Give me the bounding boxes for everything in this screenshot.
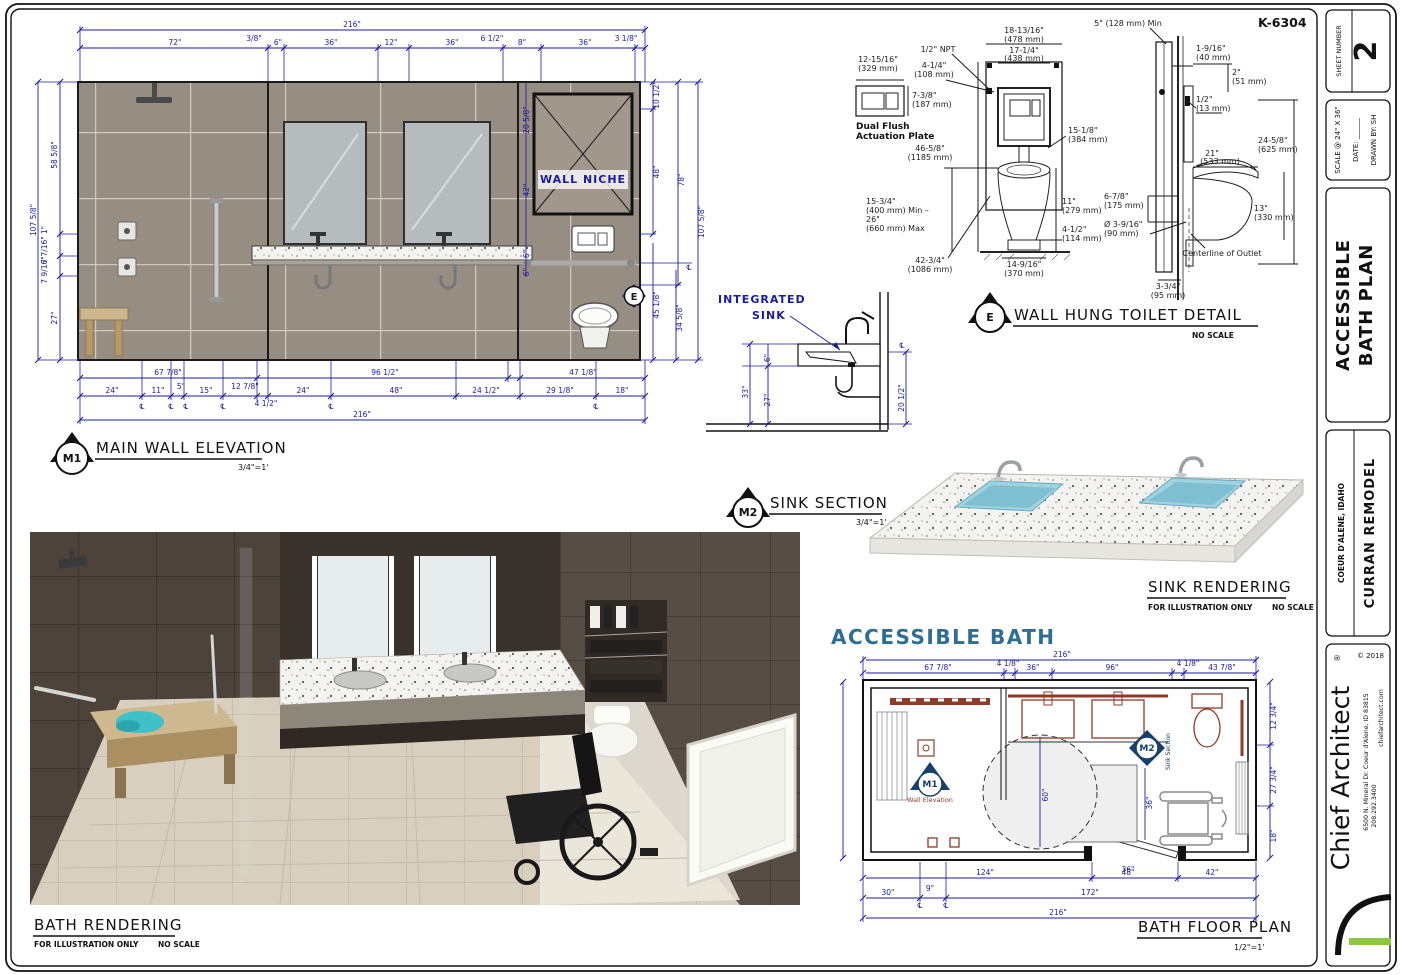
dim-label: 29 1/8"	[546, 386, 573, 395]
brand-website: chiefarchitect.com	[1378, 689, 1385, 747]
dim-label: 58 5/8"	[50, 141, 59, 168]
marker-m1-caption: Wall Elevation	[907, 796, 953, 804]
integrated-sink-label: INTEGRATED	[718, 293, 806, 306]
dim-label: (95 mm)	[1151, 291, 1186, 300]
project-name: CURRAN REMODEL	[1363, 458, 1378, 608]
flush-plate	[572, 226, 614, 252]
centerline-symbol: ℄	[140, 402, 145, 411]
dim-label: 3 1/8"	[615, 34, 638, 43]
centerline-symbol: ℄	[900, 341, 905, 350]
model-number: K-6304	[1258, 15, 1307, 30]
dim-label: 18"	[616, 386, 629, 395]
dim-label: 12 7/8"	[231, 382, 258, 391]
toilet-side-view: 5" (128 mm) Min 1-9/16" (40 mm) 2" (51 m…	[1094, 19, 1298, 300]
dim-label: 26"	[866, 215, 880, 224]
dim-label: 6 1/2"	[481, 34, 504, 43]
dim-label: 12 3/4"	[1269, 702, 1278, 729]
dim-label: (114 mm)	[1062, 234, 1102, 243]
brand-reg-mark: ®	[1333, 654, 1342, 662]
centerline-symbol: ℄	[687, 263, 692, 272]
dim-label: 96"	[1106, 663, 1119, 672]
brand-address: 6500 N. Mineral Dr. Coeur d'Alene, ID 83…	[1363, 693, 1370, 830]
dim-label: 24-5/8"	[1258, 136, 1288, 145]
sheet-date: DATE: ______	[1352, 118, 1360, 162]
dim-label: 15"	[200, 386, 213, 395]
render-shelf	[585, 600, 667, 702]
dim-label: 42"	[522, 184, 531, 197]
dim-label: (400 mm) Min –	[866, 206, 929, 215]
dim-label: 14-9/16"	[1007, 260, 1042, 269]
sheet-scale: SCALE @ 24" X 36"	[1334, 106, 1342, 173]
dim-label: 48"	[652, 166, 661, 179]
dim-label: (13 mm)	[1196, 104, 1231, 113]
brand-logo-icon	[1338, 897, 1391, 955]
sheet-number-label: SHEET NUMBER	[1335, 25, 1343, 77]
brand-phone: 208.292.3400	[1371, 784, 1378, 827]
dim-label: 34 5/8"	[675, 304, 684, 331]
elevation-title: M1 MAIN WALL ELEVATION 3/4"=1'	[50, 432, 287, 474]
drawn-by: DRAWN BY: SH	[1370, 115, 1378, 166]
dim-label: 42-3/4"	[915, 256, 945, 265]
dim-label: Ø 3-9/16"	[1104, 219, 1142, 229]
floor-plan-title: BATH FLOOR PLAN 1/2"=1'	[1137, 918, 1292, 952]
dim-label: 216"	[1049, 908, 1067, 917]
sink-rendering: SINK RENDERING FOR ILLUSTRATION ONLY NO …	[870, 458, 1314, 612]
dim-label: 1"	[40, 226, 49, 234]
dim-label: (660 mm) Max	[866, 224, 925, 233]
dim-label: 24"	[297, 386, 310, 395]
dim-label: 96 1/2"	[371, 368, 398, 377]
dim-label: 11"	[152, 386, 165, 395]
dim-label: 45 1/8"	[652, 291, 661, 318]
render-vanity	[280, 650, 585, 749]
main-wall-elevation-drawing: WALL NICHE E	[29, 20, 706, 474]
dim-label: (279 mm)	[1062, 206, 1102, 215]
dim-label: 27 3/4"	[1269, 766, 1278, 793]
dim-label: 12-15/16"	[858, 55, 898, 64]
dim-label: 1/2"	[1196, 95, 1213, 104]
dim-label: 15-3/4"	[866, 197, 896, 206]
view-note: FOR ILLUSTRATION ONLY	[1148, 603, 1253, 612]
toilet-detail-title: E WALL HUNG TOILET DETAIL NO SCALE	[968, 292, 1258, 340]
dim-label: 42"	[1206, 868, 1219, 877]
view-title: SINK RENDERING	[1148, 578, 1292, 596]
view-scale: 1/2"=1'	[1234, 943, 1265, 952]
centerline-symbol: ℄	[329, 402, 334, 411]
dim-label: 4-1/2"	[1062, 225, 1087, 234]
view-scale: NO SCALE	[1192, 331, 1234, 340]
dim-label: 36"	[1027, 663, 1040, 672]
title-block: SHEET NUMBER 2 SCALE @ 24" X 36" DATE: _…	[1326, 10, 1391, 966]
view-title: WALL HUNG TOILET DETAIL	[1014, 306, 1242, 324]
dim-label: (90 mm)	[1104, 229, 1139, 238]
bath-rendering: BATH RENDERING FOR ILLUSTRATION ONLY NO …	[30, 532, 800, 949]
elevation-dims-bottom: 67 7/8" 96 1/2" 47 1/8" 24" 11" 5" 15" 1…	[77, 360, 648, 424]
plan-heading: ACCESSIBLE BATH	[831, 625, 1056, 649]
marker-m2-ref: M2	[1139, 744, 1154, 754]
dim-label: 36"	[325, 38, 338, 47]
dim-label: (625 mm)	[1258, 145, 1298, 154]
sheet-number: 2	[1349, 41, 1384, 62]
dim-label: (187 mm)	[912, 100, 952, 109]
marker-e-ref: E	[631, 292, 638, 303]
bath-rendering-title: BATH RENDERING FOR ILLUSTRATION ONLY NO …	[33, 916, 200, 949]
dim-label: (329 mm)	[858, 64, 898, 73]
centerline-symbol: ℄	[944, 901, 949, 910]
centerline-symbol: ℄	[221, 402, 226, 411]
elevation-dims-top: 216" 72" 3/8" 6" 36" 12" 36" 6 1/2" 8" 3…	[77, 20, 648, 82]
sheet-canvas: WALL NICHE E	[0, 0, 1401, 975]
brand-logotype: Chief Architect	[1326, 686, 1355, 871]
dim-label: 7 9/16"	[40, 256, 49, 283]
elevation-dims-left: 107 5/8" 58 5/8" 1" 7 7/16" 7 9/16" 27"	[29, 79, 78, 363]
view-title: MAIN WALL ELEVATION	[96, 439, 287, 457]
dim-label: 67 7/8"	[154, 368, 181, 377]
dim-label: 107 5/8"	[29, 204, 38, 236]
project-location: COEUR D'ALENE, IDAHO	[1337, 483, 1346, 583]
dim-label: 20 1/2"	[897, 384, 906, 411]
centerline-symbol: ℄	[184, 402, 189, 411]
dim-label: (330 mm)	[1254, 213, 1294, 222]
dim-label: 6"	[763, 354, 772, 362]
sink-section-title: M2 SINK SECTION 3/4"=1'	[726, 487, 888, 527]
dim-label: 27"	[50, 312, 59, 325]
dim-label: (108 mm)	[914, 70, 954, 79]
dim-label: 30"	[882, 888, 895, 897]
dim-label: 1/2" NPT	[921, 45, 956, 54]
plate-label: Dual Flush	[856, 122, 910, 132]
dim-label: 2"	[1232, 68, 1241, 77]
dim-label: 67 7/8"	[924, 663, 951, 672]
dim-label: 20 5/8"	[522, 106, 531, 133]
dim-label: 216"	[343, 20, 361, 29]
centerline-of-outlet-label: Centerline of Outlet	[1183, 249, 1262, 258]
dim-label: 18-13/16"	[1004, 26, 1044, 35]
dim-label: 9"	[926, 884, 934, 893]
dim-label: (175 mm)	[1104, 201, 1144, 210]
dim-label: 107 5/8"	[697, 206, 706, 238]
dim-label: 124"	[976, 868, 994, 877]
dim-label: (478 mm)	[1004, 35, 1044, 44]
dim-label: 172"	[1081, 888, 1099, 897]
dim-label: 1-9/16"	[1196, 44, 1226, 53]
dim-label: 6"	[522, 268, 531, 276]
dim-label: 24 1/2"	[472, 386, 499, 395]
dim-label: 3/8"	[246, 34, 262, 43]
dim-label: (1086 mm)	[908, 265, 953, 274]
dim-label: 47 1/8"	[569, 368, 596, 377]
drawing-sheet: { "title_block": { "sheet_number_label":…	[0, 0, 1401, 975]
view-title: BATH RENDERING	[34, 916, 182, 934]
marker-m2-caption: Sink Section	[1165, 733, 1172, 770]
dim-label: 4 1/8"	[997, 659, 1020, 668]
render-glass-panel	[240, 548, 252, 884]
dim-label: (533 mm)	[1200, 157, 1240, 166]
dim-label: 24"	[106, 386, 119, 395]
dim-label: (438 mm)	[1004, 54, 1044, 63]
dim-label: 36"	[446, 38, 459, 47]
dim-label: 10 1/2"	[652, 81, 661, 108]
dim-label: 78"	[677, 174, 686, 187]
sheet-title-line2: BATH PLAN	[1356, 244, 1377, 367]
dim-label: (40 mm)	[1196, 53, 1231, 62]
dim-label: 6"	[522, 250, 531, 258]
dim-label: 6"	[274, 38, 282, 47]
view-scale: NO SCALE	[158, 940, 200, 949]
dim-label: 27"	[763, 394, 772, 407]
sheet-title-line1: ACCESSIBLE	[1333, 239, 1354, 371]
dim-label: 60"	[1041, 789, 1050, 802]
dim-label: 36"	[1145, 797, 1154, 810]
dim-label: (51 mm)	[1232, 77, 1267, 86]
view-title: SINK SECTION	[770, 494, 888, 512]
dim-label: 33"	[741, 386, 750, 399]
dim-label: 36"	[579, 38, 592, 47]
toilet-front-view: 1/2" NPT 4-1/4" (108 mm) 18-13/16" (478 …	[866, 26, 1108, 278]
dim-label: 216"	[1053, 650, 1071, 659]
centerline-symbol: ℄	[169, 402, 174, 411]
dim-label: 4 1/8"	[1177, 659, 1200, 668]
dim-label: 11"	[1062, 197, 1076, 206]
marker-m1-ref: M1	[922, 780, 937, 790]
view-scale: 3/4"=1'	[856, 518, 887, 527]
dim-label: (370 mm)	[1004, 269, 1044, 278]
view-scale: NO SCALE	[1272, 603, 1314, 612]
centerline-symbol: ℄	[918, 901, 923, 910]
dim-label: 6-7/8"	[1104, 192, 1129, 201]
wall-hung-toilet-detail: K-6304 12-15/16" (329 mm) 7-3/8" (187 mm…	[856, 15, 1307, 340]
dim-label: 5" (128 mm) Min	[1094, 19, 1162, 28]
dim-label: 12"	[385, 38, 398, 47]
copyright: © 2018	[1357, 652, 1384, 660]
wall-niche: WALL NICHE	[534, 94, 632, 214]
dim-label: 18"	[1269, 830, 1278, 843]
dim-label: (1185 mm)	[908, 153, 953, 162]
plate-label: Actuation Plate	[856, 132, 934, 142]
dim-label: 13"	[1254, 204, 1268, 213]
dim-label: 8"	[518, 38, 526, 47]
dim-label: 7-3/8"	[912, 91, 937, 100]
sink-section-drawing: INTEGRATED SINK 6" 33" 27" 20 1/2" ℄ M2 …	[706, 292, 912, 527]
marker-e: E	[986, 311, 994, 324]
dim-label: 48"	[390, 386, 403, 395]
dim-label: 72"	[169, 38, 182, 47]
centerline-symbol: ℄	[594, 402, 599, 411]
marker-m2: M2	[739, 506, 758, 519]
marker-m1: M1	[63, 452, 82, 465]
dim-label: 46-5/8"	[915, 144, 945, 153]
dim-label: 43 7/8"	[1208, 663, 1235, 672]
dim-label: 15-1/8"	[1068, 126, 1098, 135]
dim-label: 36"	[1122, 865, 1135, 874]
bath-floor-plan: ACCESSIBLE BATH 60" 36"	[831, 625, 1292, 952]
view-title: BATH FLOOR PLAN	[1138, 918, 1292, 936]
dim-label: 4-1/4"	[922, 61, 947, 70]
dim-label: 4 1/2"	[255, 399, 278, 408]
view-scale: 3/4"=1'	[238, 463, 269, 472]
wall-niche-label: WALL NICHE	[540, 173, 626, 186]
view-note: FOR ILLUSTRATION ONLY	[34, 940, 139, 949]
integrated-sink-label: SINK	[752, 309, 786, 322]
dim-label: (384 mm)	[1068, 135, 1108, 144]
dim-label: 3-3/4"	[1156, 282, 1181, 291]
dim-label: 216"	[353, 410, 371, 419]
dim-label: 5"	[177, 382, 185, 391]
